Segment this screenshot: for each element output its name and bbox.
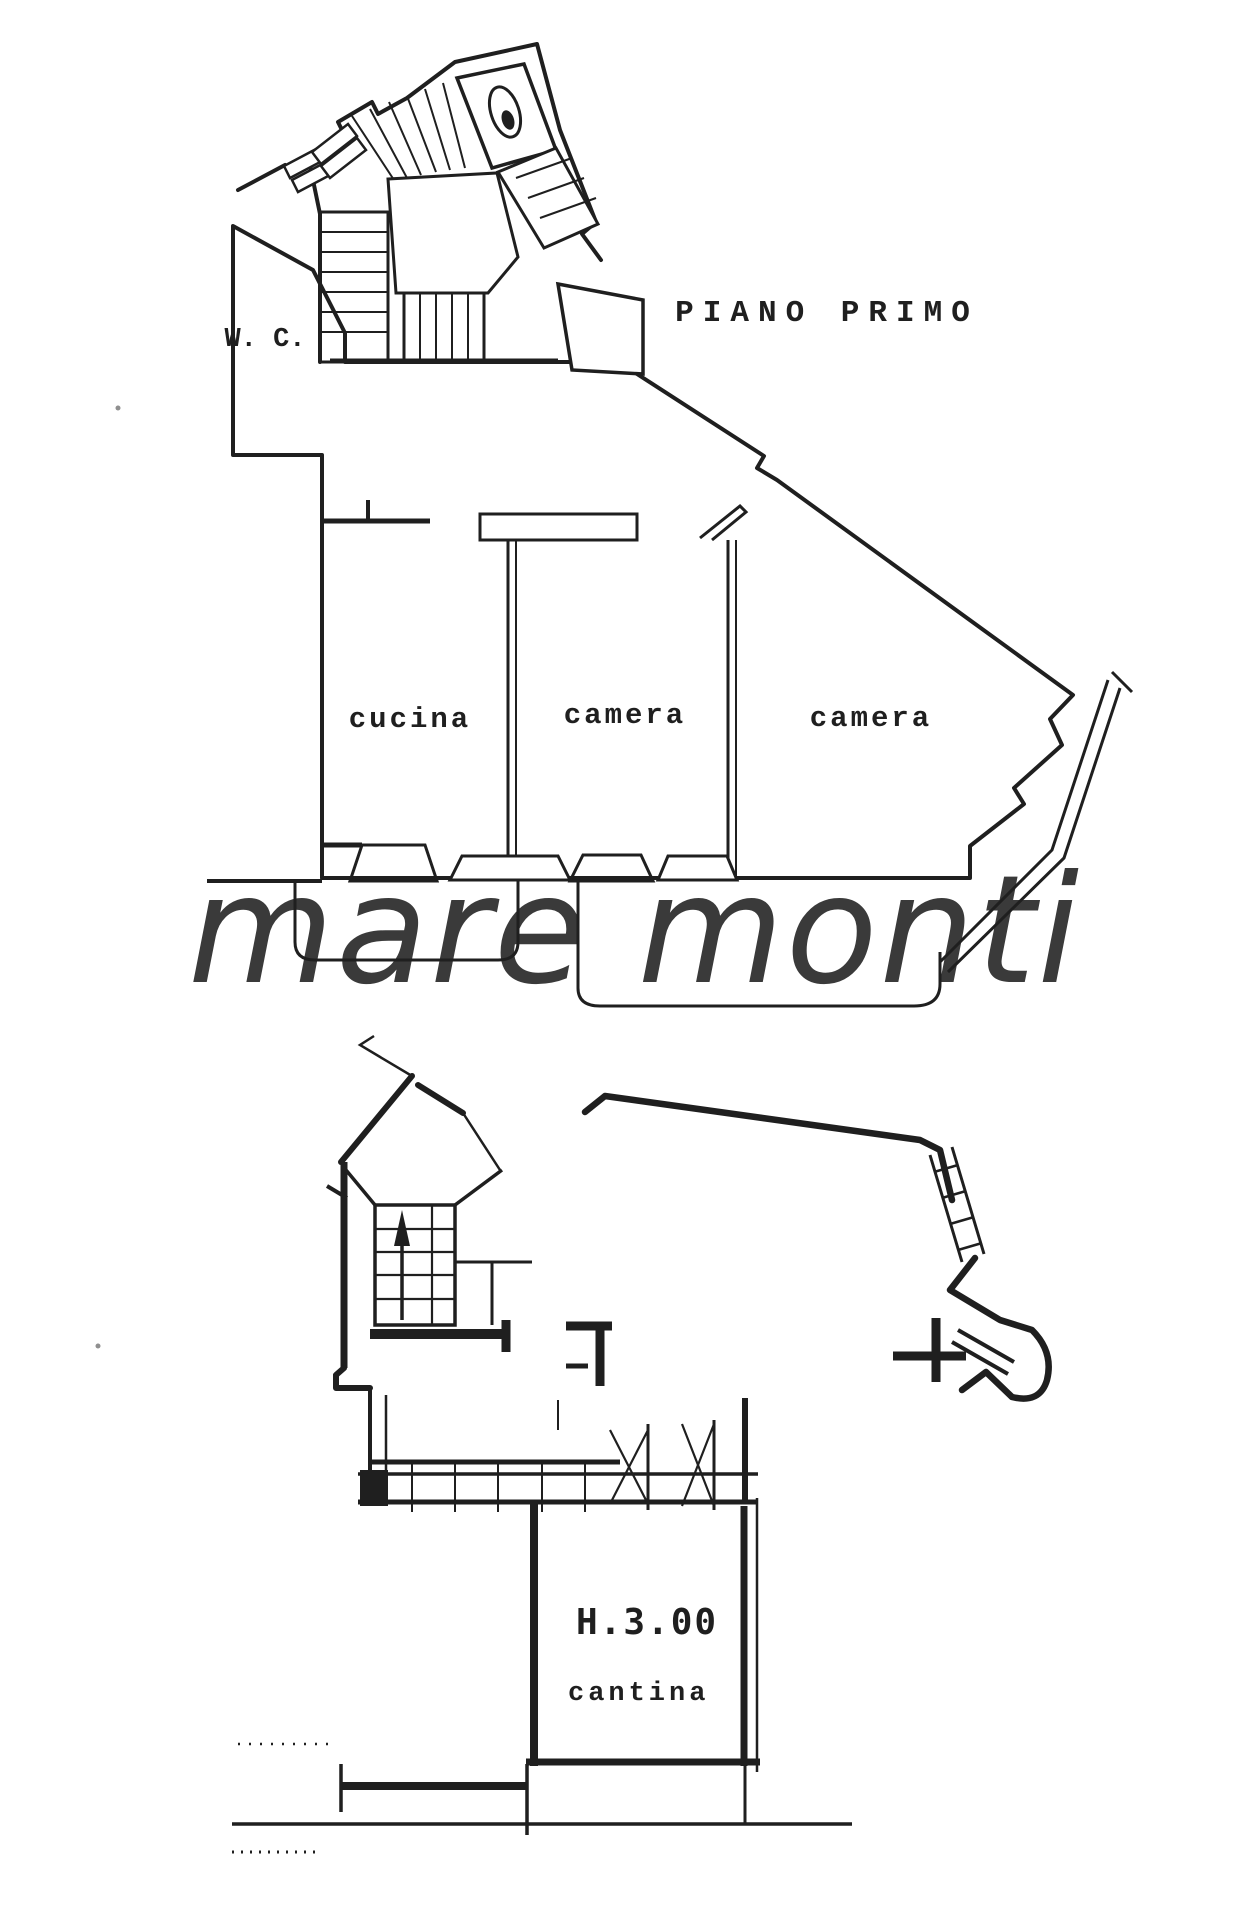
basement-stair-steps [375,1205,455,1325]
wall-thin-diagonal [360,1036,500,1170]
scan-speck [96,1344,101,1349]
room-label-camera-2: camera [810,702,932,735]
stair-left-flight [320,212,388,362]
zigzag-wall-hook [950,1258,1049,1399]
wall-ticks [412,1400,585,1512]
zigzag-wall-top [585,1096,952,1200]
wall-tee [566,1326,612,1386]
stair-inner-wall [455,1262,532,1325]
corridor-wall [322,521,430,845]
wall-diagonal [341,1076,463,1162]
door-jambs [648,1420,714,1510]
floor-plan-drawing: PIANO PRIMO W. C. cucina camera camera m… [0,0,1249,1920]
agency-watermark: mare monti [188,844,1081,1018]
room-label-wc: W. C. [224,325,305,355]
floor-plan-scan-page: PIANO PRIMO W. C. cucina camera camera m… [0,0,1249,1920]
basement-stair [375,1205,455,1325]
height-annotation: H.3.00 [576,1602,718,1643]
room-label-camera-1: camera [564,699,686,732]
plan-title: PIANO PRIMO [675,296,979,331]
stair-landing [388,173,518,293]
room-label-cucina: cucina [349,703,471,736]
room-label-cantina: cantina [568,1679,709,1709]
stair-splay-walls [346,1170,502,1205]
scan-speck [116,406,121,411]
stair-steps-bottom-flight [420,293,468,360]
wall-left-foot [336,1368,370,1388]
basement-plan: H.3.00 cantina [96,1036,1049,1852]
ramp-flight-steps [934,1165,982,1250]
wall-tee [893,1318,966,1382]
wall-junction [360,1470,388,1506]
stair-bottom-flight [404,293,484,360]
wall-niche [480,514,637,540]
door-jamb-hook [700,506,746,540]
door-swing-marks [610,1424,714,1506]
entrance-vestibule [558,284,643,374]
stair-steps-upper-flight [352,83,465,180]
stair-steps-left-flight [320,232,388,332]
